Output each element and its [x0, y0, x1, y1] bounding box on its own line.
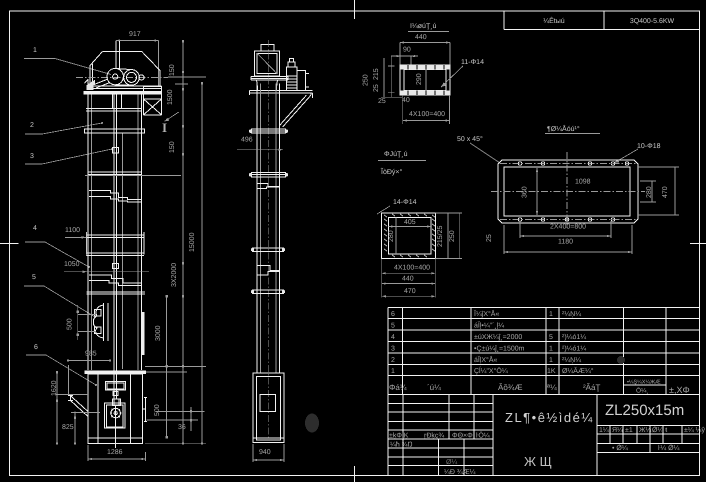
- svg-text:I¼øúŢ¸ú: I¼øúŢ¸ú: [410, 22, 437, 30]
- svg-text:500: 500: [67, 318, 74, 330]
- svg-text:3: 3: [391, 345, 395, 352]
- svg-text:215/25: 215/25: [436, 225, 444, 247]
- svg-text:1180: 1180: [558, 239, 573, 246]
- svg-text:3X2000: 3X2000: [171, 263, 178, 287]
- svg-text:•¼Ş¼X¼ЖÆ: •¼Ş¼X¼ЖÆ: [627, 380, 661, 386]
- svg-text:²)¼ó1¼: ²)¼ó1¼: [562, 333, 586, 341]
- svg-text:4: 4: [33, 225, 37, 232]
- svg-text:3Q400-5.6KW: 3Q400-5.6KW: [630, 18, 675, 25]
- svg-text:825: 825: [62, 424, 74, 431]
- svg-text:280: 280: [388, 230, 395, 242]
- svg-text:25: 25: [486, 234, 493, 242]
- svg-text:470: 470: [662, 186, 669, 198]
- svg-text:2: 2: [30, 122, 34, 129]
- svg-text:áĬļX°Å«: áĬļX°Å«: [474, 355, 498, 364]
- svg-text:4X100=400: 4X100=400: [394, 265, 430, 272]
- svg-text:Ō¼¸: Ō¼¸: [636, 387, 649, 395]
- svg-text:917: 917: [129, 31, 141, 38]
- svg-text:1K: 1K: [547, 368, 556, 375]
- svg-text:6: 6: [34, 344, 38, 351]
- svg-text:5: 5: [32, 274, 36, 281]
- svg-text:±¼ ¼ŷ: ±¼ ¼ŷ: [684, 426, 705, 434]
- svg-text:1: 1: [391, 368, 395, 375]
- svg-text:1: 1: [549, 311, 553, 318]
- svg-text:¼Êtыú: ¼Êtыú: [543, 16, 564, 25]
- svg-text:5: 5: [549, 334, 553, 341]
- svg-text:405: 405: [404, 219, 416, 226]
- svg-text:440: 440: [402, 276, 414, 283]
- svg-text:²¼Ņ¼: ²¼Ņ¼: [562, 311, 581, 318]
- svg-text:ŀŌ¼: ŀŌ¼: [476, 432, 490, 440]
- svg-text:280: 280: [646, 186, 653, 198]
- svg-text:50 x 45°: 50 x 45°: [457, 136, 483, 143]
- svg-text:ŗĐķç¾: ŗĐķç¾: [424, 432, 444, 440]
- svg-text:²)¼ó1¼: ²)¼ó1¼: [562, 344, 586, 352]
- svg-text:ZL¶•ê½ìdé¼: ZL¶•ê½ìdé¼: [505, 410, 594, 425]
- svg-text:Ǿ¼ ŧ: Ǿ¼ ŧ: [652, 425, 667, 434]
- svg-text:Φá¼: Φá¼: [389, 383, 407, 392]
- svg-text:±úXЖ¼ĵ¸=2000: ±úXЖ¼ĵ¸=2000: [474, 333, 522, 341]
- svg-text:Ăõ¾Æ: Ăõ¾Æ: [498, 383, 522, 392]
- svg-text:11-Φ14: 11-Φ14: [461, 59, 484, 66]
- svg-text:90: 90: [403, 47, 411, 54]
- svg-text:´ú¼: ´ú¼: [427, 383, 441, 392]
- svg-text:150: 150: [169, 64, 176, 76]
- svg-text:Ø¼ĂÆ¼°: Ø¼ĂÆ¼°: [562, 366, 594, 375]
- svg-text:3000: 3000: [155, 325, 162, 341]
- svg-text:ZL250x15m: ZL250x15m: [605, 402, 684, 419]
- svg-text:Я¼: Я¼: [612, 427, 623, 434]
- svg-text:25: 25: [373, 84, 380, 92]
- svg-text:1: 1: [549, 357, 553, 364]
- svg-text:36: 36: [178, 424, 186, 431]
- svg-text:1: 1: [549, 345, 553, 352]
- svg-text:• Ǿ¼: • Ǿ¼: [612, 443, 628, 452]
- svg-text:985: 985: [85, 351, 97, 358]
- svg-text:470: 470: [404, 288, 416, 295]
- svg-text:ĨòĐý×°: ĨòĐý×°: [380, 167, 402, 176]
- svg-text:250: 250: [449, 230, 456, 242]
- svg-text:Ж¼: Ж¼: [639, 427, 651, 434]
- svg-text:2X400=800: 2X400=800: [550, 224, 586, 231]
- svg-text:500: 500: [154, 404, 161, 416]
- svg-text:2: 2: [391, 357, 395, 364]
- svg-text:290: 290: [416, 73, 423, 85]
- svg-text:4X100=400: 4X100=400: [409, 111, 445, 118]
- svg-text:496: 496: [241, 137, 253, 144]
- svg-text:¼Ð ¾Æ¼: ¼Ð ¾Æ¼: [444, 469, 476, 476]
- svg-text:ª¼: ª¼: [547, 383, 557, 392]
- svg-text:10-Φ18: 10-Φ18: [637, 143, 661, 150]
- svg-text:250: 250: [363, 74, 370, 86]
- svg-text:215: 215: [373, 68, 380, 80]
- svg-text:6: 6: [391, 311, 395, 318]
- svg-text:Çĺ¼"X°Ō¼: Çĺ¼"X°Ō¼: [474, 366, 508, 375]
- svg-text:±1: ±1: [625, 427, 633, 434]
- svg-text:4: 4: [391, 334, 395, 341]
- svg-text:ΦΘ×Φ: ΦΘ×Φ: [452, 433, 473, 440]
- svg-text:Ж Щ: Ж Щ: [524, 454, 552, 469]
- svg-text:3: 3: [30, 153, 34, 160]
- svg-text:14-Φ14: 14-Φ14: [393, 199, 417, 206]
- svg-text:•Ç±ú¼ĵ¸=1500m: •Ç±ú¼ĵ¸=1500m: [474, 344, 525, 352]
- svg-text:1286: 1286: [107, 449, 123, 456]
- svg-text:1050: 1050: [64, 261, 80, 268]
- svg-text:¼ħ ¾Ŋ: ¼ħ ¾Ŋ: [390, 441, 413, 449]
- svg-text:25: 25: [378, 98, 386, 105]
- svg-text:1500: 1500: [167, 89, 174, 105]
- svg-text:I: I: [162, 120, 167, 135]
- svg-text:940: 940: [259, 449, 271, 456]
- svg-text:1: 1: [33, 47, 37, 54]
- svg-text:1¼: 1¼: [599, 427, 609, 434]
- svg-text:ŀ¼ Ǿ¼: ŀ¼ Ǿ¼: [658, 443, 680, 452]
- svg-text:360: 360: [522, 186, 529, 198]
- svg-text:ΦJúŢ¸ú: ΦJúŢ¸ú: [384, 150, 408, 158]
- svg-text:Ĭ¼ĵX°Å«: Ĭ¼ĵX°Å«: [473, 309, 499, 318]
- svg-text:5: 5: [391, 323, 395, 330]
- svg-text:440: 440: [415, 34, 427, 41]
- svg-text:15000: 15000: [189, 232, 196, 252]
- svg-text:Ø¼: Ø¼: [446, 458, 457, 466]
- svg-text:²¼Ņ¼: ²¼Ņ¼: [562, 357, 581, 364]
- svg-text:±,XΦ: ±,XΦ: [669, 385, 690, 395]
- svg-text:1098: 1098: [575, 179, 591, 186]
- svg-text:²ĂáŢ: ²ĂáŢ: [583, 383, 600, 392]
- svg-text:áĬļ•¼”´¸ļ¼: áĬļ•¼”´¸ļ¼: [474, 321, 504, 330]
- svg-text:150: 150: [169, 141, 176, 153]
- svg-text:±ķΦ|Ķ: ±ķΦ|Ķ: [389, 432, 409, 440]
- svg-text:¶Ø¼Åóú¹°: ¶Ø¼Åóú¹°: [547, 124, 580, 133]
- svg-text:1100: 1100: [65, 227, 80, 234]
